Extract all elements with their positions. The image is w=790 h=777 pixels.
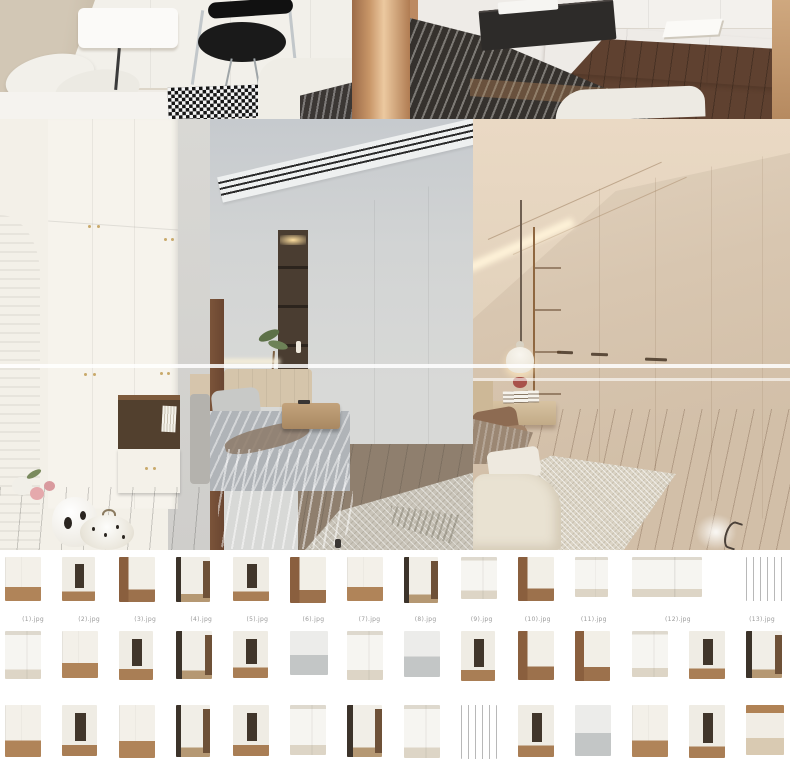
thumbnail[interactable]: [575, 557, 608, 597]
bed-leg: [335, 539, 341, 548]
thumbnail-caption: (13).jpg: [734, 616, 790, 626]
thumbnail-caption: (4).jpg: [173, 616, 229, 626]
thumbnail-cell: [176, 557, 233, 602]
decor-bottle: [296, 341, 301, 353]
thumbnail-cell: [347, 557, 404, 601]
thumbnail-cell: [632, 557, 746, 597]
thumbnail-grid: (1).jpg(2).jpg(3).jpg(4).jpg(5).jpg(6).j…: [0, 550, 790, 777]
thumbnail-caption: (7).jpg: [341, 616, 397, 626]
wardrobe-knob: [97, 225, 100, 228]
floating-nightstand: [282, 403, 340, 429]
pumpkin-dot: [104, 533, 107, 537]
thumbnail-cell: [689, 705, 746, 758]
bed-sliver: [190, 394, 210, 484]
thumbnail[interactable]: [5, 557, 41, 601]
white-flower: [12, 477, 32, 495]
wood-shelf-column: [533, 227, 561, 417]
thumbnail-cell: [518, 631, 575, 680]
thumbnail[interactable]: [233, 557, 269, 601]
thumbnail[interactable]: [404, 705, 440, 758]
thumbnail-caption: (2).jpg: [61, 616, 117, 626]
thumbnail-cell: [632, 631, 689, 677]
thumbnail-cell: [5, 705, 62, 757]
thumbnail-row: [0, 557, 790, 603]
thumbnail[interactable]: [119, 557, 155, 602]
thumbnail[interactable]: [347, 557, 383, 601]
warm-hallway: [352, 0, 410, 119]
wardrobe-knob: [88, 225, 91, 228]
photo-beige-bedroom-wardrobe[interactable]: [473, 119, 790, 550]
thumbnail[interactable]: [575, 631, 610, 681]
thumbnail-caption: (6).jpg: [285, 616, 341, 626]
pumpkin-dot: [122, 535, 125, 539]
thumbnail-cell: [575, 705, 632, 756]
thumbnail[interactable]: [5, 631, 41, 679]
thumbnail-cell: [290, 631, 347, 675]
glare-line: [473, 378, 790, 381]
thumbnail-cell: [5, 631, 62, 679]
floating-desk: [78, 8, 178, 48]
thumbnail[interactable]: [461, 705, 497, 759]
thumbnail[interactable]: [62, 705, 97, 756]
caption-row: (1).jpg(2).jpg(3).jpg(4).jpg(5).jpg(6).j…: [0, 616, 790, 626]
pink-flower: [44, 481, 55, 491]
thumbnail-cell: [404, 631, 461, 677]
wardrobe-handle: [591, 353, 608, 357]
pumpkin-dot: [116, 525, 119, 529]
wardrobe-knob: [164, 238, 167, 241]
thumbnail-cell: [119, 705, 176, 758]
thumbnail-cell: [290, 705, 347, 755]
thumbnail[interactable]: [290, 705, 326, 755]
thumbnail-cell: [290, 557, 347, 603]
thumbnail-cell: [233, 705, 290, 756]
thumbnail[interactable]: [461, 631, 495, 681]
pendant-cord: [520, 200, 522, 348]
thumbnail-cell: [518, 705, 575, 757]
thumbnail[interactable]: [632, 557, 702, 597]
thumbnail[interactable]: [689, 631, 725, 679]
thumbnail-cell: [746, 557, 790, 601]
thumbnail-caption: (1).jpg: [5, 616, 61, 626]
mattress-corner: [555, 85, 706, 119]
thumbnail-cell: [233, 557, 290, 601]
pink-flower: [30, 487, 44, 500]
thumbnail-caption: (11).jpg: [566, 616, 622, 626]
photo-grey-bedroom-wardrobe[interactable]: [210, 119, 473, 550]
photo-bedroom-desk-chair[interactable]: [0, 0, 410, 119]
thumbnail-cell: [176, 705, 233, 757]
thumbnail[interactable]: [518, 705, 554, 757]
thumbnail[interactable]: [518, 557, 554, 601]
book-stack: [503, 390, 539, 403]
thumbnail[interactable]: [119, 631, 153, 680]
glare-line: [0, 364, 790, 368]
thumbnail-cell: [176, 631, 233, 679]
vase-spot: [64, 517, 72, 529]
phone: [298, 400, 310, 404]
thumbnail[interactable]: [62, 557, 95, 601]
thumbnail[interactable]: [746, 631, 782, 678]
pendant-lamp: [506, 347, 534, 373]
photo-bedroom-striped-bed[interactable]: [410, 0, 790, 119]
vase-spot: [80, 511, 86, 520]
cream-bed-frame: [473, 474, 561, 550]
thumbnail-cell: [461, 705, 518, 759]
thumbnail-cell: [347, 705, 404, 757]
duvet: [0, 92, 190, 119]
thumbnail-cell: [62, 557, 119, 601]
thumbnail-cell: [461, 631, 518, 681]
wardrobe-knob: [167, 372, 170, 375]
thumbnail-cell: [233, 631, 290, 678]
bed-foot: [218, 449, 353, 549]
thumbnail[interactable]: [632, 631, 668, 677]
thumbnail-caption: (9).jpg: [454, 616, 510, 626]
thumbnail[interactable]: [176, 705, 210, 757]
wardrobe-knob: [171, 238, 174, 241]
thumbnail[interactable]: [290, 557, 326, 603]
top-photo-strip: [0, 0, 790, 119]
thumbnail-caption: (12).jpg: [622, 616, 734, 626]
thumbnail[interactable]: [176, 557, 210, 602]
thumbnail-cell: [461, 557, 518, 599]
thumbnail[interactable]: [689, 705, 725, 758]
thumbnail-cell: [62, 631, 119, 678]
thumbnail[interactable]: [632, 705, 668, 757]
thumbnail-cell: [518, 557, 575, 601]
thumbnail[interactable]: [176, 631, 212, 679]
books: [161, 406, 176, 433]
thumbnail[interactable]: [461, 557, 497, 599]
wardrobe-knob: [153, 467, 156, 470]
warm-wall-edge: [772, 0, 790, 119]
photo-white-wardrobe-arch[interactable]: [0, 119, 210, 550]
thumbnail-cell: [347, 631, 404, 680]
thumbnail-caption: (5).jpg: [229, 616, 285, 626]
main-photo-row: [0, 119, 790, 550]
display-niche: [118, 395, 180, 454]
thumbnail-cell: [119, 557, 176, 602]
thumbnail[interactable]: [518, 631, 554, 680]
wardrobe-knob: [93, 373, 96, 376]
thumbnail[interactable]: [746, 705, 784, 755]
thumbnail-cell: [62, 705, 119, 756]
thumbnail[interactable]: [119, 705, 155, 758]
thumbnail-cell: [404, 557, 461, 603]
thumbnail[interactable]: [347, 631, 383, 680]
pumpkin-dot: [92, 527, 95, 531]
thumbnail-caption: (10).jpg: [510, 616, 566, 626]
thumbnail[interactable]: [62, 631, 98, 678]
thumbnail-cell: [746, 705, 790, 755]
houndstooth-rug: [167, 84, 268, 119]
thumbnail-cell: [746, 631, 790, 678]
thumbnail-row: [0, 631, 790, 681]
thumbnail[interactable]: [347, 705, 382, 757]
thumbnail[interactable]: [5, 705, 41, 757]
wardrobe-knob: [84, 373, 87, 376]
shelf-light: [280, 235, 306, 245]
thumbnail-cell: [575, 557, 632, 597]
thumbnail[interactable]: [575, 705, 611, 756]
thumbnail-cell: [404, 705, 461, 758]
wardrobe-knob: [145, 467, 148, 470]
thumbnail-caption: (3).jpg: [117, 616, 173, 626]
thumbnail[interactable]: [233, 631, 268, 678]
chair-seat: [198, 22, 286, 62]
thumbnail[interactable]: [233, 705, 269, 756]
wardrobe-knob: [160, 372, 163, 375]
thumbnail[interactable]: [290, 631, 328, 675]
thumbnail-cell: [119, 631, 176, 680]
thumbnail[interactable]: [404, 631, 440, 677]
thumbnail-cell: [689, 631, 746, 679]
thumbnail-caption: (8).jpg: [398, 616, 454, 626]
headboard-sliver: [190, 374, 210, 396]
open-book: [662, 19, 722, 38]
pumpkin-decor: [80, 515, 134, 550]
thumbnail-row: [0, 705, 790, 759]
thumbnail[interactable]: [404, 557, 438, 603]
thumbnail-cell: [5, 557, 62, 601]
thumbnail[interactable]: [746, 557, 784, 601]
thumbnail-cell: [632, 705, 689, 757]
thumbnail-cell: [575, 631, 632, 681]
